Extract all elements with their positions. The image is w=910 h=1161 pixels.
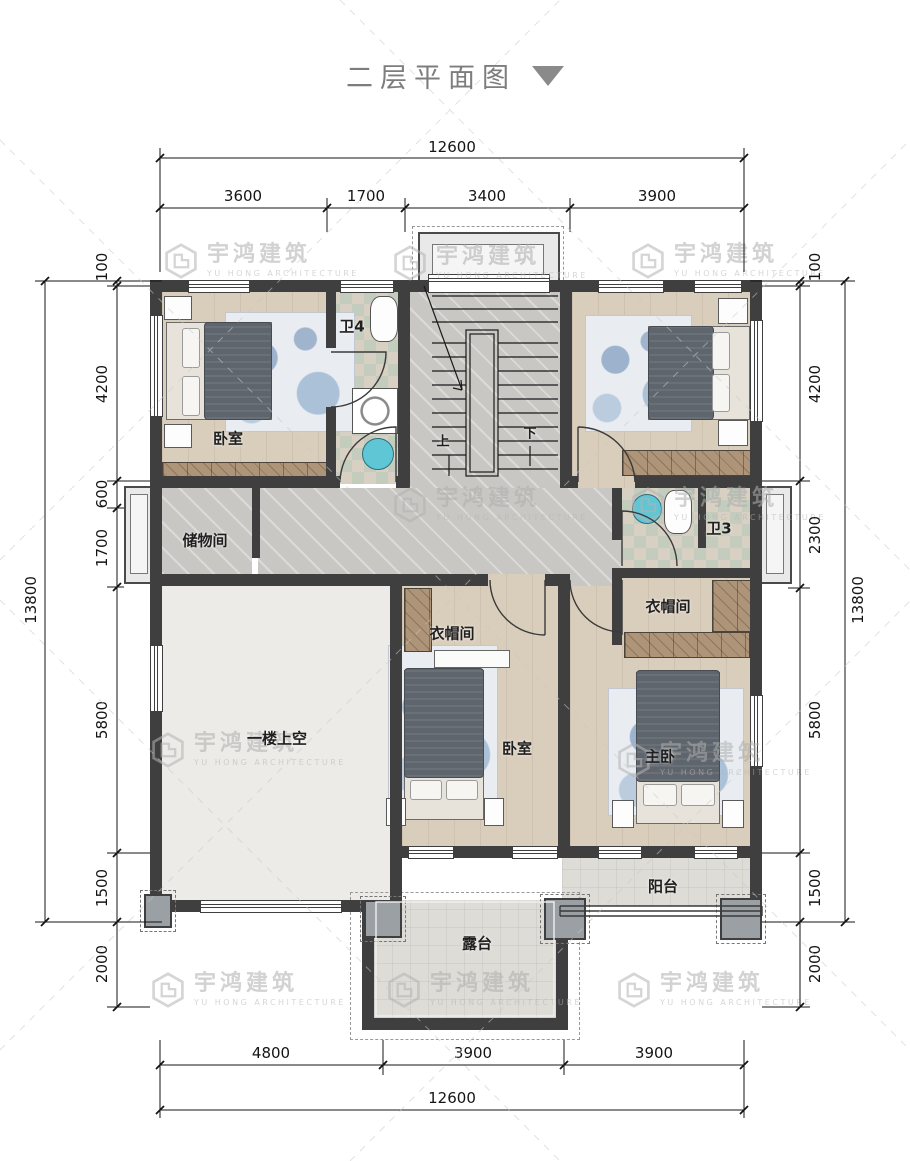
dim-right-seg-2: 4200	[806, 349, 824, 419]
window-bottom-void	[200, 900, 342, 913]
closet-cloakroom-middle	[404, 588, 432, 652]
room-label-terrace: 露台	[462, 933, 492, 954]
dim-right-seg-5: 1500	[806, 853, 824, 923]
dim-right-seg-3: 2300	[806, 500, 824, 570]
watermark: 宇鸿建筑YU HONG ARCHITECTURE	[150, 972, 346, 1008]
room-label-cloakroom-middle: 衣帽间	[429, 623, 474, 644]
left-bay-window-inner	[130, 494, 148, 574]
wall-bath4-right	[398, 286, 410, 488]
window-top-2	[598, 280, 664, 293]
room-label-cloakroom-master: 衣帽间	[645, 596, 690, 617]
watermark: 宇鸿建筑YU HONG ARCHITECTURE	[616, 972, 812, 1008]
nightstand	[484, 798, 504, 826]
dim-right-seg-4: 5800	[806, 685, 824, 755]
wall-hall-right	[560, 286, 572, 488]
dim-left-seg-7: 2000	[93, 929, 111, 999]
window-bottom-4	[694, 846, 738, 859]
sink-bath4	[362, 438, 394, 470]
wall-mid-top-2	[545, 574, 570, 586]
pillow	[182, 328, 200, 368]
yu-hong-logo-icon	[150, 972, 186, 1008]
dim-right-seg-1: 100	[806, 232, 824, 302]
closet-cloakroom-master-tall	[712, 580, 752, 632]
dim-top-seg-3: 3400	[452, 187, 522, 205]
stair-label-down: 下	[523, 423, 536, 442]
nightstand	[164, 424, 192, 448]
wall-band-4	[635, 476, 762, 488]
pillow	[712, 374, 730, 412]
dim-bottom-total: 12600	[417, 1089, 487, 1107]
dresser-cloakroom-middle	[434, 650, 510, 668]
wall-bath3-divider	[698, 488, 706, 548]
dropdown-triangle-icon[interactable]	[532, 66, 564, 86]
wall-bath4-left-upper	[326, 286, 336, 348]
yu-hong-logo-icon	[616, 972, 652, 1008]
window-right-bedroom	[750, 320, 763, 422]
room-label-master-bedroom: 主卧	[645, 746, 675, 767]
room-label-bedroom-middle: 卧室	[502, 738, 532, 759]
room-label-balcony: 阳台	[648, 876, 678, 897]
wall-void-top	[150, 574, 402, 586]
dim-left-seg-4: 1700	[93, 513, 111, 583]
dim-left-seg-2: 4200	[93, 349, 111, 419]
room-label-bedroom-top-left: 卧室	[213, 428, 243, 449]
wall-void-right	[390, 574, 402, 912]
window-top-1	[188, 280, 250, 293]
dim-top-seg-2: 1700	[331, 187, 401, 205]
pillow	[410, 780, 442, 800]
nightstand	[164, 296, 192, 320]
window-left-bedroom	[150, 315, 163, 417]
window-top-bath4	[340, 280, 394, 293]
window-top-3	[694, 280, 742, 293]
dim-left-seg-1: 100	[93, 232, 111, 302]
window-left-void	[150, 645, 163, 712]
pillow	[446, 780, 478, 800]
pillow	[182, 376, 200, 416]
closet-cloakroom-master	[624, 632, 750, 658]
dim-left-seg-5: 5800	[93, 685, 111, 755]
blanket	[204, 322, 272, 420]
window-bottom-3	[598, 846, 642, 859]
pillow	[712, 332, 730, 370]
stair-hall-floor	[410, 292, 560, 488]
column-terrace-left	[364, 900, 402, 938]
toilet-bath4	[370, 296, 398, 342]
dim-top-total: 12600	[417, 138, 487, 156]
pillow	[643, 784, 677, 806]
dim-right-total: 13800	[849, 565, 867, 635]
room-label-void: 一楼上空	[247, 728, 307, 749]
wall-bath3-bottom	[612, 568, 762, 578]
room-label-bath3: 卫3	[706, 518, 731, 539]
dim-top-seg-4: 3900	[622, 187, 692, 205]
nightstand	[722, 800, 744, 828]
nightstand	[612, 800, 634, 828]
blanket	[404, 668, 484, 778]
yu-hong-logo-icon	[630, 243, 666, 279]
wall-mid-master-divider	[558, 574, 570, 846]
window-bottom-1	[408, 846, 454, 859]
window-bottom-2	[512, 846, 558, 859]
page-title: 二层平面图	[0, 56, 910, 95]
wall-cloak-master-left	[612, 578, 622, 645]
room-label-bath4: 卫4	[339, 316, 364, 337]
window-stair-bay	[428, 274, 550, 293]
wall-storage-right	[252, 488, 260, 558]
floor-plan-page: 二层平面图	[0, 0, 910, 1161]
wall-band-3	[570, 476, 578, 488]
wall-bath4-left-lower	[326, 407, 336, 476]
window-right-master	[750, 695, 763, 767]
wall-band-2	[396, 476, 402, 488]
stair-label-up: 上	[436, 431, 449, 450]
dim-left-seg-6: 1500	[93, 853, 111, 923]
page-title-text: 二层平面图	[346, 56, 516, 95]
watermark: 宇鸿建筑YU HONG ARCHITECTURE	[163, 243, 359, 279]
dim-bottom-seg-2: 3900	[438, 1044, 508, 1062]
dim-left-total: 13800	[22, 565, 40, 635]
column-balcony-right	[720, 898, 762, 940]
column-bottom-left	[144, 894, 172, 928]
dim-right-seg-6: 2000	[806, 929, 824, 999]
wall-bath3-left	[612, 488, 622, 540]
corridor-floor	[258, 488, 622, 586]
wall-mid-top-1	[402, 574, 488, 586]
terrace-parapet-bottom	[362, 1018, 568, 1030]
top-bay-window-inner	[432, 244, 544, 276]
column-terrace-right	[544, 898, 586, 940]
nightstand	[718, 420, 748, 446]
dim-bottom-seg-3: 3900	[619, 1044, 689, 1062]
washing-machine	[352, 388, 398, 434]
toilet-bath3	[664, 490, 692, 534]
sink-bath3	[632, 494, 662, 524]
nightstand	[718, 298, 748, 324]
watermark: 宇鸿建筑YU HONG ARCHITECTURE	[630, 243, 826, 279]
wardrobe-top-right	[622, 450, 752, 476]
blanket	[648, 326, 714, 420]
dim-top-seg-1: 3600	[208, 187, 278, 205]
yu-hong-logo-icon	[163, 243, 199, 279]
pillow	[681, 784, 715, 806]
right-bay-window-inner	[766, 494, 784, 574]
dim-bottom-seg-1: 4800	[236, 1044, 306, 1062]
wall-band-1	[150, 476, 340, 488]
room-label-storage: 储物间	[182, 530, 227, 551]
